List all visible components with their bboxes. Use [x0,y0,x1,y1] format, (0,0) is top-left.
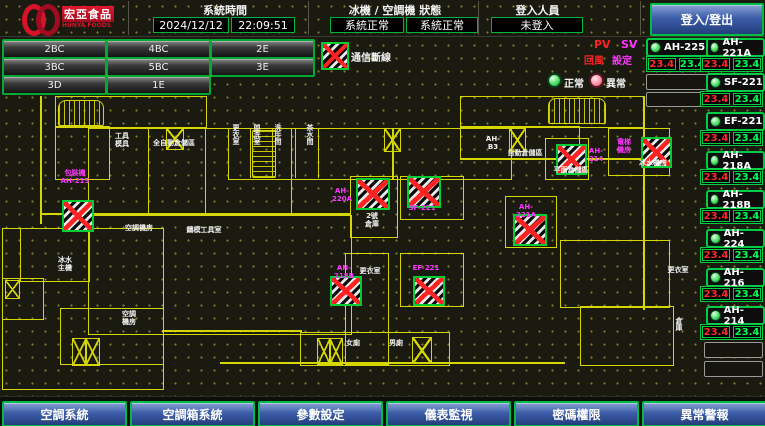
shaft-icon [384,128,401,152]
unit-box-sf-221[interactable]: SF-221 [706,73,765,92]
unit-values: 23.4 23.4 [700,324,763,340]
status-lamp-icon [710,233,721,244]
pv-value: 23.4 [702,288,730,300]
comm-loss-indicator [330,276,362,306]
wall [560,240,670,308]
room-label: 冰水 主機 [56,256,74,272]
stairs-icon [548,98,606,124]
room-label: 男廁 [387,339,405,347]
room-label: 全自動倉儲區 [149,139,199,147]
brand-logo-icon-2 [36,4,60,36]
abnormal-label: 異常 [606,75,626,90]
floor-button-4bc[interactable]: 4BC [106,39,211,59]
shaft-icon [5,280,20,299]
sv-value: 23.4 [733,93,761,105]
bottom-bar: 空調系統 空調箱系統 參數設定 儀表監視 密碼權限 異常警報 [0,396,765,426]
nav-button-alarm[interactable]: 異常警報 [642,401,765,426]
pv-value: 23.4 [702,249,730,261]
room-label: 冰水機房 [637,159,669,167]
room-label: 倉庫 [675,317,682,331]
room-label: AH-B3 [482,135,504,151]
ahu-map-label: EF-221 [412,264,440,272]
status-lamp-icon [710,310,721,321]
nav-button-password[interactable]: 密碼權限 [514,401,639,426]
ahu-map-label: AH-214 [583,147,609,163]
login-logout-button[interactable]: 登入/登出 [650,3,764,36]
status-lamp-icon [710,155,719,166]
pv-abbr: PV [594,38,611,51]
unit-box-ah-218b[interactable]: AH-218B [706,190,765,209]
status-lamp-icon [710,77,721,88]
unit-box-ef-221[interactable]: EF-221 [706,112,765,131]
comm-loss-indicator [62,200,94,232]
brand-name: 宏亞食品 [62,6,114,22]
ahu-map-label: 包裝機 AH-215 [57,169,93,185]
divider [640,1,641,35]
unit-values: 23.4 23.4 [700,247,763,263]
comm-loss-indicator [356,178,390,210]
brand-name-en: HUNYA FOODS [62,22,111,29]
floor-button-2bc[interactable]: 2BC [2,39,107,59]
sv-value: 23.4 [733,249,761,261]
unit-box-ah-221a[interactable]: AH-221A [706,38,765,57]
unit-values-ah-225: 23.4 23.4 [646,56,708,72]
pv-name: 回風 [584,52,604,67]
wall [460,158,645,160]
nav-button-param-settings[interactable]: 參數設定 [258,401,383,426]
room-label: 工具 模具 [109,132,135,148]
sv-value: 23.4 [733,210,761,222]
stairs-icon [58,100,104,126]
system-time-value: 22:09:51 [231,17,295,33]
unit-box-ah-216[interactable]: AH-216 [706,268,765,287]
room-label: 茶水間 [306,124,313,145]
top-bar: 宏亞食品 HUNYA FOODS 系統時間 2024/12/12 22:09:5… [0,0,765,37]
empty-slot [704,342,763,358]
ahu-map-label: 電梯 機房 [611,138,637,154]
room-label: 盥洗室 [253,124,260,145]
normal-lamp-icon [547,73,562,88]
system-time-label: 系統時間 [150,2,300,18]
unit-values: 23.4 23.4 [700,91,763,107]
wall [162,330,302,332]
floor-button-2e[interactable]: 2E [210,39,315,59]
unit-box-ah-225[interactable]: AH-225 [646,38,710,57]
room-label: 更衣室 [356,267,384,275]
status-lamp-icon [710,272,721,283]
divider [128,1,129,35]
room-label: 女廁 [344,339,362,347]
sv-value: 23.4 [733,288,761,300]
shaft-icon [412,337,432,364]
pv-value: 23.4 [702,210,730,222]
unit-box-ah-218a[interactable]: AH-218A [706,151,765,170]
ahu-map-label: AH-221A [510,203,542,219]
wall [205,128,206,213]
status-lamp-icon [710,194,719,205]
system-date-value: 2024/12/12 [153,17,229,33]
unit-values: 23.4 23.4 [700,130,763,146]
ahu-status-value: 系統正常 [406,17,478,33]
empty-slot [646,74,708,90]
wall [250,128,251,178]
pv-value: 23.4 [648,58,676,70]
room-label: 更衣室 [232,124,239,145]
unit-values: 23.4 23.4 [700,286,763,302]
unit-values: 23.4 23.4 [700,169,763,185]
divider [308,1,309,35]
machine-status-label: 冰機 / 空調機 狀態 [315,2,475,18]
wall [220,362,565,364]
pv-value: 23.4 [702,326,730,338]
wall [295,128,296,178]
nav-button-meter-monitor[interactable]: 儀表監視 [386,401,511,426]
unit-name: EF-221 [724,116,762,127]
shaft-icon [329,338,343,365]
unit-values: 23.4 23.4 [700,56,763,72]
room-label: 洗手間 [274,124,281,145]
unit-box-ah-224[interactable]: AH-224 [706,229,765,248]
status-lamp-icon [710,42,719,53]
sv-value: 23.4 [733,171,761,183]
unit-box-ah-214[interactable]: AH-214 [706,306,765,325]
sv-abbr: SV [621,38,637,51]
pv-value: 23.4 [702,58,730,70]
divider [478,1,479,35]
comm-loss-indicator [413,276,445,306]
chiller-status-value: 系統正常 [330,17,404,33]
comm-loss-legend-label: 通信斷線 [351,49,391,64]
pv-value: 23.4 [702,171,730,183]
ahu-map-label: AH-220A [327,187,357,203]
wall [318,128,319,178]
empty-slot [704,361,763,377]
pv-value: 23.4 [702,132,730,144]
status-lamp-icon [710,116,721,127]
sv-name: 設定 [612,52,632,67]
room-label: 平面倉儲區 [551,166,591,174]
pv-value: 23.4 [702,93,730,105]
shaft-icon [85,338,100,366]
wall [580,306,674,366]
floor-button-5bc[interactable]: 5BC [106,57,211,77]
ahu-map-label: AH-218B [329,264,359,280]
comm-loss-legend-icon [321,42,349,70]
room-label: 空調 機房 [120,310,138,326]
wall [40,96,42,224]
floor-plan: 工具 模具 全自動倉儲區 更衣室 盥洗室 洗手間 茶水間 AH-B3 自動倉儲區… [0,92,700,396]
login-user-value: 未登入 [491,17,583,33]
sv-value: 23.4 [733,58,761,70]
abnormal-lamp-icon [589,73,604,88]
nav-button-ac-system[interactable]: 空調系統 [2,401,127,426]
status-lamp-icon [650,42,661,53]
nav-button-ahu-system[interactable]: 空調箱系統 [130,401,255,426]
room-label: 2號 倉庫 [360,212,384,228]
room-label: 自動倉儲區 [503,149,547,157]
room-label: 鑄模工具室 [183,226,225,234]
floor-button-3e[interactable]: 3E [210,57,315,77]
room-label: 空調機房 [121,224,157,232]
login-user-label: 登入人員 [490,2,585,18]
sv-value: 23.4 [733,326,761,338]
hmi-screen: 宏亞食品 HUNYA FOODS 系統時間 2024/12/12 22:09:5… [0,0,765,426]
unit-name: AH-225 [664,42,705,53]
unit-values: 23.4 23.4 [700,208,763,224]
wall [20,228,90,282]
room-label: 更衣室 [664,266,692,274]
sv-value: 23.4 [733,132,761,144]
unit-name: SF-221 [724,77,763,88]
normal-label: 正常 [564,75,584,90]
ahu-map-label: SF-221 [408,204,436,212]
floor-button-3bc[interactable]: 3BC [2,57,107,77]
